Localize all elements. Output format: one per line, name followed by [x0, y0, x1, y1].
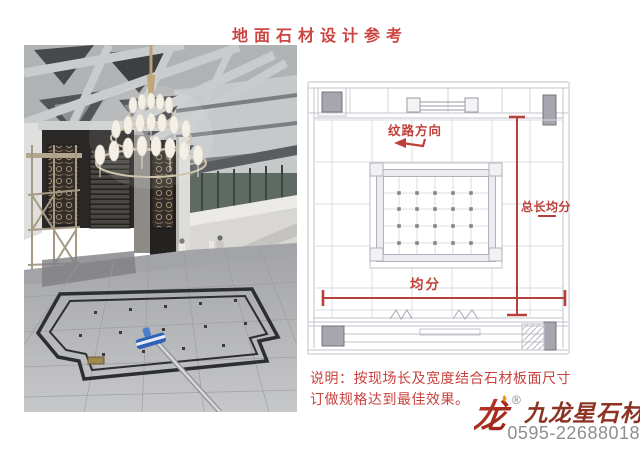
- page-title: 地面石材设计参考: [0, 22, 640, 46]
- grain-direction-label: 纹路方向: [388, 123, 442, 138]
- floorplan-diagram: 纹路方向 总长均分 均分: [302, 76, 578, 370]
- poster-canvas: 地面石材设计参考: [0, 0, 640, 452]
- floorplan-drawing: 纹路方向 总长均分 均分: [302, 76, 578, 370]
- registered-mark: ®: [512, 393, 521, 407]
- brass-floor-vent: [88, 357, 104, 364]
- total-length-dimension: [507, 117, 527, 315]
- lobby-photo-art: [24, 45, 297, 412]
- lobby-photo: [24, 45, 297, 412]
- total-length-label: 总长均分: [521, 199, 571, 214]
- equal-division-dimension: [323, 290, 565, 306]
- phone-number: 0595-22688018: [502, 423, 640, 444]
- plan-hatch-area: [522, 324, 544, 350]
- note-line-1: 说明：按现场长及宽度结合石材板面尺寸: [310, 368, 626, 389]
- brand-block: 龙 ® 九龙星石材 0595-22688018: [474, 390, 640, 450]
- equal-division-label: 均分: [410, 276, 441, 292]
- grain-direction-annotation: 纹路方向: [388, 123, 442, 148]
- plan-door-detail: [407, 98, 478, 112]
- plan-medallion: [370, 163, 502, 268]
- marble-floor: [24, 243, 297, 412]
